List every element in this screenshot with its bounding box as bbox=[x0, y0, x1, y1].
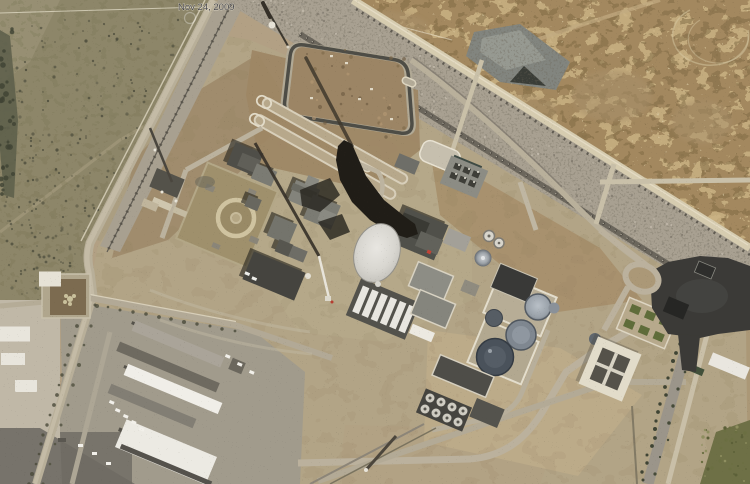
svg-text:Nov 24, 2009: Nov 24, 2009 bbox=[178, 2, 235, 13]
